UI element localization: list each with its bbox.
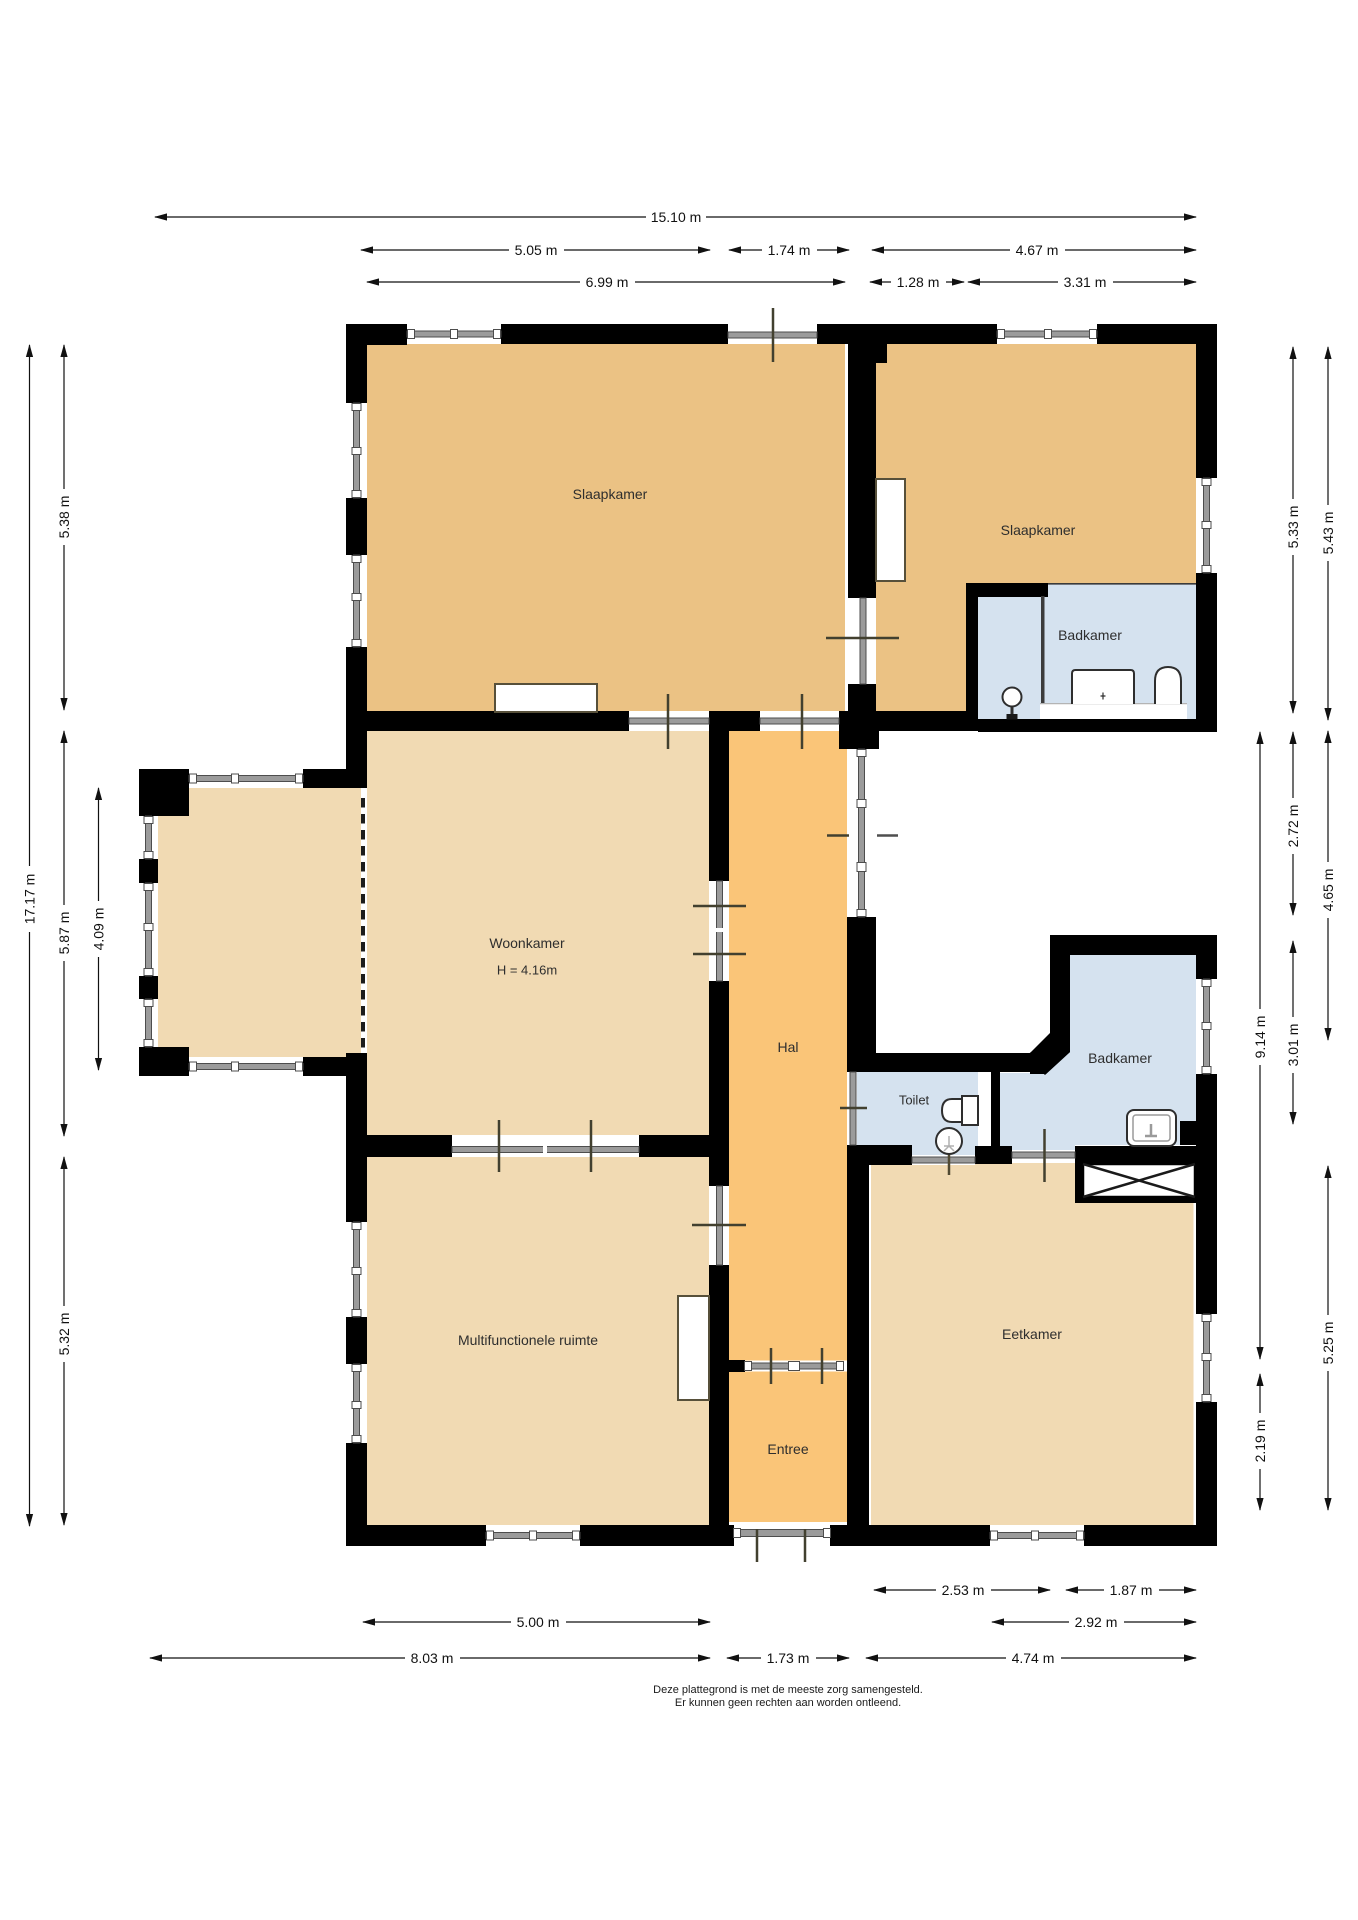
svg-text:15.10 m: 15.10 m xyxy=(651,209,702,225)
svg-text:2.72 m: 2.72 m xyxy=(1285,805,1301,848)
svg-text:Multifunctionele ruimte: Multifunctionele ruimte xyxy=(458,1332,598,1348)
svg-text:4.09 m: 4.09 m xyxy=(90,908,106,951)
svg-text:Slaapkamer: Slaapkamer xyxy=(1001,522,1076,538)
svg-text:Badkamer: Badkamer xyxy=(1058,627,1122,643)
svg-text:Deze plattegrond is met de mee: Deze plattegrond is met de meeste zorg s… xyxy=(653,1684,923,1696)
svg-text:5.05 m: 5.05 m xyxy=(515,242,558,258)
svg-text:5.25 m: 5.25 m xyxy=(1320,1322,1336,1365)
svg-text:5.00 m: 5.00 m xyxy=(517,1614,560,1630)
svg-text:3.31 m: 3.31 m xyxy=(1064,274,1107,290)
svg-text:Entree: Entree xyxy=(767,1441,808,1457)
svg-text:1.74 m: 1.74 m xyxy=(768,242,811,258)
svg-text:4.67 m: 4.67 m xyxy=(1016,242,1059,258)
svg-text:3.01 m: 3.01 m xyxy=(1285,1024,1301,1067)
svg-text:1.28 m: 1.28 m xyxy=(897,274,940,290)
svg-text:8.03 m: 8.03 m xyxy=(411,1650,454,1666)
svg-text:Badkamer: Badkamer xyxy=(1088,1050,1152,1066)
svg-text:H = 4.16m: H = 4.16m xyxy=(497,963,557,978)
svg-text:Eetkamer: Eetkamer xyxy=(1002,1326,1062,1342)
svg-text:5.38 m: 5.38 m xyxy=(56,496,72,539)
svg-text:9.14 m: 9.14 m xyxy=(1252,1016,1268,1059)
svg-text:Toilet: Toilet xyxy=(899,1093,930,1108)
svg-text:Slaapkamer: Slaapkamer xyxy=(573,486,648,502)
svg-text:5.87 m: 5.87 m xyxy=(56,912,72,955)
svg-text:Er kunnen geen rechten aan wor: Er kunnen geen rechten aan worden ontlee… xyxy=(675,1697,901,1709)
svg-text:2.19 m: 2.19 m xyxy=(1252,1420,1268,1463)
svg-text:17.17 m: 17.17 m xyxy=(21,874,37,925)
svg-text:2.53 m: 2.53 m xyxy=(942,1582,985,1598)
svg-text:1.87 m: 1.87 m xyxy=(1110,1582,1153,1598)
svg-text:4.74 m: 4.74 m xyxy=(1012,1650,1055,1666)
svg-text:2.92 m: 2.92 m xyxy=(1075,1614,1118,1630)
svg-text:Woonkamer: Woonkamer xyxy=(489,935,565,951)
svg-text:5.32 m: 5.32 m xyxy=(56,1313,72,1356)
svg-text:5.43 m: 5.43 m xyxy=(1320,512,1336,555)
svg-text:1.73 m: 1.73 m xyxy=(767,1650,810,1666)
svg-text:6.99 m: 6.99 m xyxy=(586,274,629,290)
svg-text:5.33 m: 5.33 m xyxy=(1285,506,1301,549)
svg-text:4.65 m: 4.65 m xyxy=(1320,869,1336,912)
svg-text:Hal: Hal xyxy=(777,1039,798,1055)
